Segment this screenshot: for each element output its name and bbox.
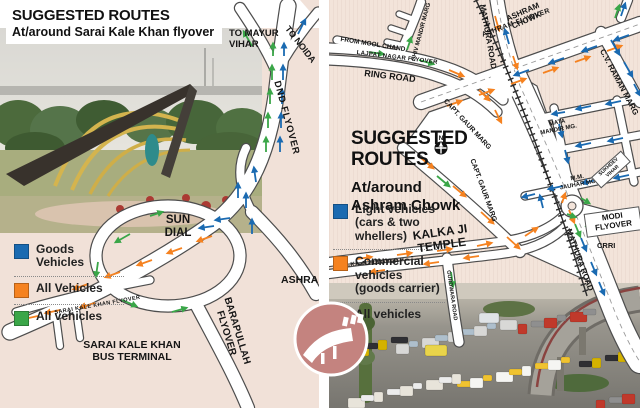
right-title-line2: ROUTES	[351, 150, 468, 171]
legend-item-all-vehicles-orange: All Vehicles	[14, 279, 124, 305]
legend-swatch-orange	[333, 256, 348, 271]
right-title-line1: SUGGESTED	[351, 129, 468, 150]
left-legend: Goods Vehicles All Vehicles All vehicles	[14, 240, 124, 334]
legend-item-commercial-vehicles: Commercial vehicles (goods carrier)	[333, 252, 445, 302]
right-subtitle-line1: At/around	[351, 179, 468, 197]
legend-swatch-orange	[14, 283, 29, 298]
left-subtitle: At/around Sarai Kale Khan flyover	[12, 25, 214, 39]
legend-swatch-green	[14, 311, 29, 326]
label-bus-terminal: SARAI KALE KHAN BUS TERMINAL	[70, 340, 194, 364]
legend-item-light-vehicles: Light vehicles (cars & two whellers)	[333, 200, 445, 250]
right-map-panel: MATHURA ROAD ASHRAM CHOWK ASHRAM FLYOVER…	[329, 0, 640, 408]
label-sun-dial: SUN DIAL	[150, 214, 206, 240]
label-to-mayur-vihar: TO MAYUR VIHAR	[229, 29, 279, 50]
svg-text:N: N	[439, 135, 444, 142]
label-ashram: ASHRAM	[281, 275, 319, 287]
legend-swatch-blue	[14, 244, 29, 259]
left-title: SUGGESTED ROUTES	[12, 7, 214, 24]
legend-item-all-vehicles-green: All vehicles	[14, 307, 124, 332]
label-crri: CRRI	[597, 242, 615, 250]
legend-item-goods-vehicles: Goods Vehicles	[14, 240, 124, 277]
left-map-panel: SUGGESTED ROUTES At/around Sarai Kale Kh…	[0, 0, 319, 408]
left-title-box: SUGGESTED ROUTES At/around Sarai Kale Kh…	[6, 4, 222, 44]
infographic-canvas: SUGGESTED ROUTES At/around Sarai Kale Kh…	[0, 0, 640, 408]
north-compass-icon: N	[432, 134, 450, 161]
legend-swatch-blue	[333, 204, 348, 219]
publication-logo	[293, 301, 369, 377]
